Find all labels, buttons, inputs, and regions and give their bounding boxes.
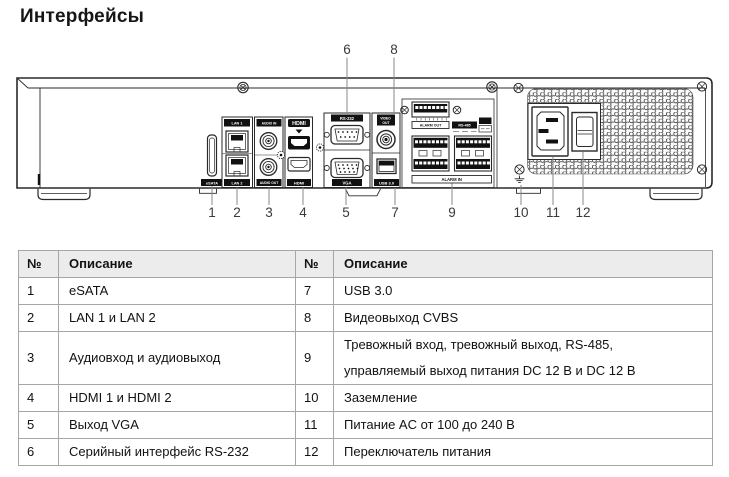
esata-label: eSATA xyxy=(206,181,218,185)
callout-7: 7 xyxy=(391,205,399,220)
callout-10: 10 xyxy=(513,205,528,220)
rs232-vga-block xyxy=(324,113,370,188)
rear-panel-diagram: eSATA LAN 1 LAN 2 xyxy=(0,0,729,240)
hdmi-port-1 xyxy=(288,136,310,150)
audio-in-label: AUDIO IN xyxy=(262,121,277,125)
description-cell: HDMI 1 и HDMI 2 xyxy=(59,385,296,412)
audio-in-jack xyxy=(260,133,277,150)
interfaces-table: № Описание № Описание 1 eSATA 7 USB 3.0 … xyxy=(18,250,713,466)
rs232-label: RS-232 xyxy=(340,116,355,121)
table-row: 1 eSATA 7 USB 3.0 xyxy=(19,278,713,305)
interfaces-table-wrap: № Описание № Описание 1 eSATA 7 USB 3.0 … xyxy=(18,250,712,466)
vga-label: VGA xyxy=(342,180,351,185)
callout-5: 5 xyxy=(342,205,350,220)
device-foot-left xyxy=(38,189,90,200)
description-cell: Питание AC от 100 до 240 В xyxy=(334,412,713,439)
description-cell: LAN 1 и LAN 2 xyxy=(59,305,296,332)
callout-8: 8 xyxy=(390,42,398,57)
row-number-cell: 10 xyxy=(296,385,334,412)
callout-3: 3 xyxy=(265,205,273,220)
row-number-cell: 1 xyxy=(19,278,59,305)
table-row: 4 HDMI 1 и HDMI 2 10 Заземление xyxy=(19,385,713,412)
bottom-tab xyxy=(200,189,217,194)
callout-11: 11 xyxy=(546,205,560,220)
col-header-desc-right: Описание xyxy=(334,251,713,278)
alarm-out-label: ALARM OUT xyxy=(420,124,442,128)
table-row: 5 Выход VGA 11 Питание AC от 100 до 240 … xyxy=(19,412,713,439)
description-cell: Аудиовход и аудиовыход xyxy=(59,332,296,385)
row-number-cell: 7 xyxy=(296,278,334,305)
row-number-cell: 2 xyxy=(19,305,59,332)
alarm-in-label: ALARM IN xyxy=(441,177,461,182)
bottom-tab xyxy=(517,189,541,194)
callout-6: 6 xyxy=(343,42,351,57)
alarm-terminals xyxy=(401,99,494,188)
row-number-cell: 4 xyxy=(19,385,59,412)
hdmi-ports xyxy=(285,117,313,188)
device-foot-right xyxy=(650,189,702,200)
description-cell: USB 3.0 xyxy=(334,278,713,305)
hdmi-logo: HDMI xyxy=(292,121,306,127)
col-header-num-right: № xyxy=(296,251,334,278)
rs485-label: RS-485 xyxy=(458,124,470,128)
description-cell: Серийный интерфейс RS-232 xyxy=(59,439,296,466)
lan-ports xyxy=(222,117,253,188)
description-cell: Переключатель питания xyxy=(334,439,713,466)
panel-screw xyxy=(277,151,284,158)
row-number-cell: 12 xyxy=(296,439,334,466)
callout-4: 4 xyxy=(299,205,307,220)
description-cell: Тревожный вход, тревожный выход, RS-485,… xyxy=(334,332,713,385)
description-cell: Заземление xyxy=(334,385,713,412)
table-row: 2 LAN 1 и LAN 2 8 Видеовыход CVBS xyxy=(19,305,713,332)
row-number-cell: 6 xyxy=(19,439,59,466)
row-number-cell: 3 xyxy=(19,332,59,385)
description-cell: Выход VGA xyxy=(59,412,296,439)
row-number-cell: 8 xyxy=(296,305,334,332)
description-cell: eSATA xyxy=(59,278,296,305)
power-section xyxy=(514,82,707,182)
row-number-cell: 5 xyxy=(19,412,59,439)
rear-panel-diagram-wrap: eSATA LAN 1 LAN 2 xyxy=(0,0,729,240)
bottom-tab xyxy=(346,189,381,196)
description-cell: Видеовыход CVBS xyxy=(334,305,713,332)
callout-1: 1 xyxy=(208,205,216,220)
col-header-num-left: № xyxy=(19,251,59,278)
callout-9: 9 xyxy=(448,205,456,220)
panel-screw xyxy=(316,144,323,151)
audio-out-label: AUDIO OUT xyxy=(260,181,279,185)
audio-out-jack xyxy=(260,159,277,176)
row-number-cell: 9 xyxy=(296,332,334,385)
table-row: 6 Серийный интерфейс RS-232 12 Переключа… xyxy=(19,439,713,466)
row-number-cell: 11 xyxy=(296,412,334,439)
lan2-label: LAN 2 xyxy=(232,181,243,185)
table-row: 3 Аудиовход и аудиовыход 9 Тревожный вхо… xyxy=(19,332,713,385)
callout-2: 2 xyxy=(233,205,241,220)
hdmi-label: HDMI xyxy=(294,180,304,185)
col-header-desc-left: Описание xyxy=(59,251,296,278)
callout-12: 12 xyxy=(575,205,590,220)
table-header-row: № Описание № Описание xyxy=(19,251,713,278)
usb-label: USB 3.0 xyxy=(379,180,395,185)
audio-ports xyxy=(255,117,285,188)
lan1-label: LAN 1 xyxy=(232,122,243,126)
